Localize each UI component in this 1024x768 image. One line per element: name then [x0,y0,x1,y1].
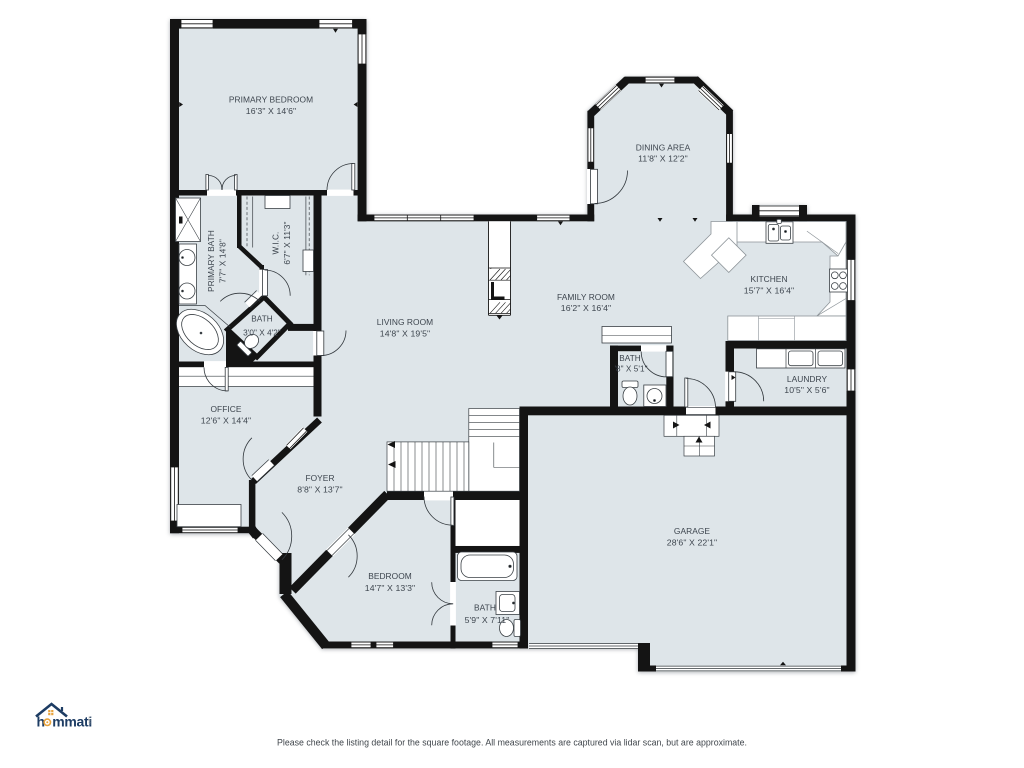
svg-text:BATH: BATH [619,354,640,363]
svg-text:DINING AREA: DINING AREA [636,142,691,152]
svg-text:5'9" X 7'11": 5'9" X 7'11" [465,615,510,625]
svg-text:7'7" X 14'8": 7'7" X 14'8" [217,239,227,283]
svg-text:PRIMARY BEDROOM: PRIMARY BEDROOM [229,94,313,104]
svg-text:OFFICE: OFFICE [210,404,241,414]
svg-text:10'5" X 5'6": 10'5" X 5'6" [784,385,829,395]
svg-text:PRIMARY BATH: PRIMARY BATH [207,230,216,292]
svg-text:FAMILY ROOM: FAMILY ROOM [557,292,615,302]
svg-text:12'6" X 14'4": 12'6" X 14'4" [201,416,251,426]
svg-text:8'8" X 13'7": 8'8" X 13'7" [297,485,342,495]
svg-text:W.I.C.: W.I.C. [272,232,281,255]
svg-text:BATH: BATH [474,603,496,613]
svg-text:GARAGE: GARAGE [674,526,710,536]
svg-text:.com: .com [87,716,92,725]
svg-text:FOYER: FOYER [305,473,334,483]
svg-text:BEDROOM: BEDROOM [368,571,412,581]
svg-text:14'8" X 19'5": 14'8" X 19'5" [380,329,430,339]
svg-text:Please check the listing detai: Please check the listing detail for the … [277,738,747,748]
svg-text:16'3" X 14'6": 16'3" X 14'6" [246,106,296,116]
svg-text:BATH: BATH [251,315,272,324]
svg-text:11'8" X 12'2": 11'8" X 12'2" [638,154,688,164]
svg-text:28'6" X 22'1": 28'6" X 22'1" [667,537,717,547]
svg-text:16'2" X 16'4": 16'2" X 16'4" [561,303,611,313]
svg-text:'8" X 5'1": '8" X 5'1" [614,365,647,374]
svg-text:KITCHEN: KITCHEN [750,274,787,284]
svg-text:14'7" X 13'3": 14'7" X 13'3" [365,583,415,593]
svg-text:6'7" X 11'3": 6'7" X 11'3" [282,221,292,264]
svg-text:LIVING ROOM: LIVING ROOM [377,317,433,327]
svg-text:3'0" X 4'2": 3'0" X 4'2" [243,329,281,338]
svg-text:LAUNDRY: LAUNDRY [787,374,828,384]
svg-text:15'7" X 16'4": 15'7" X 16'4" [744,285,794,295]
